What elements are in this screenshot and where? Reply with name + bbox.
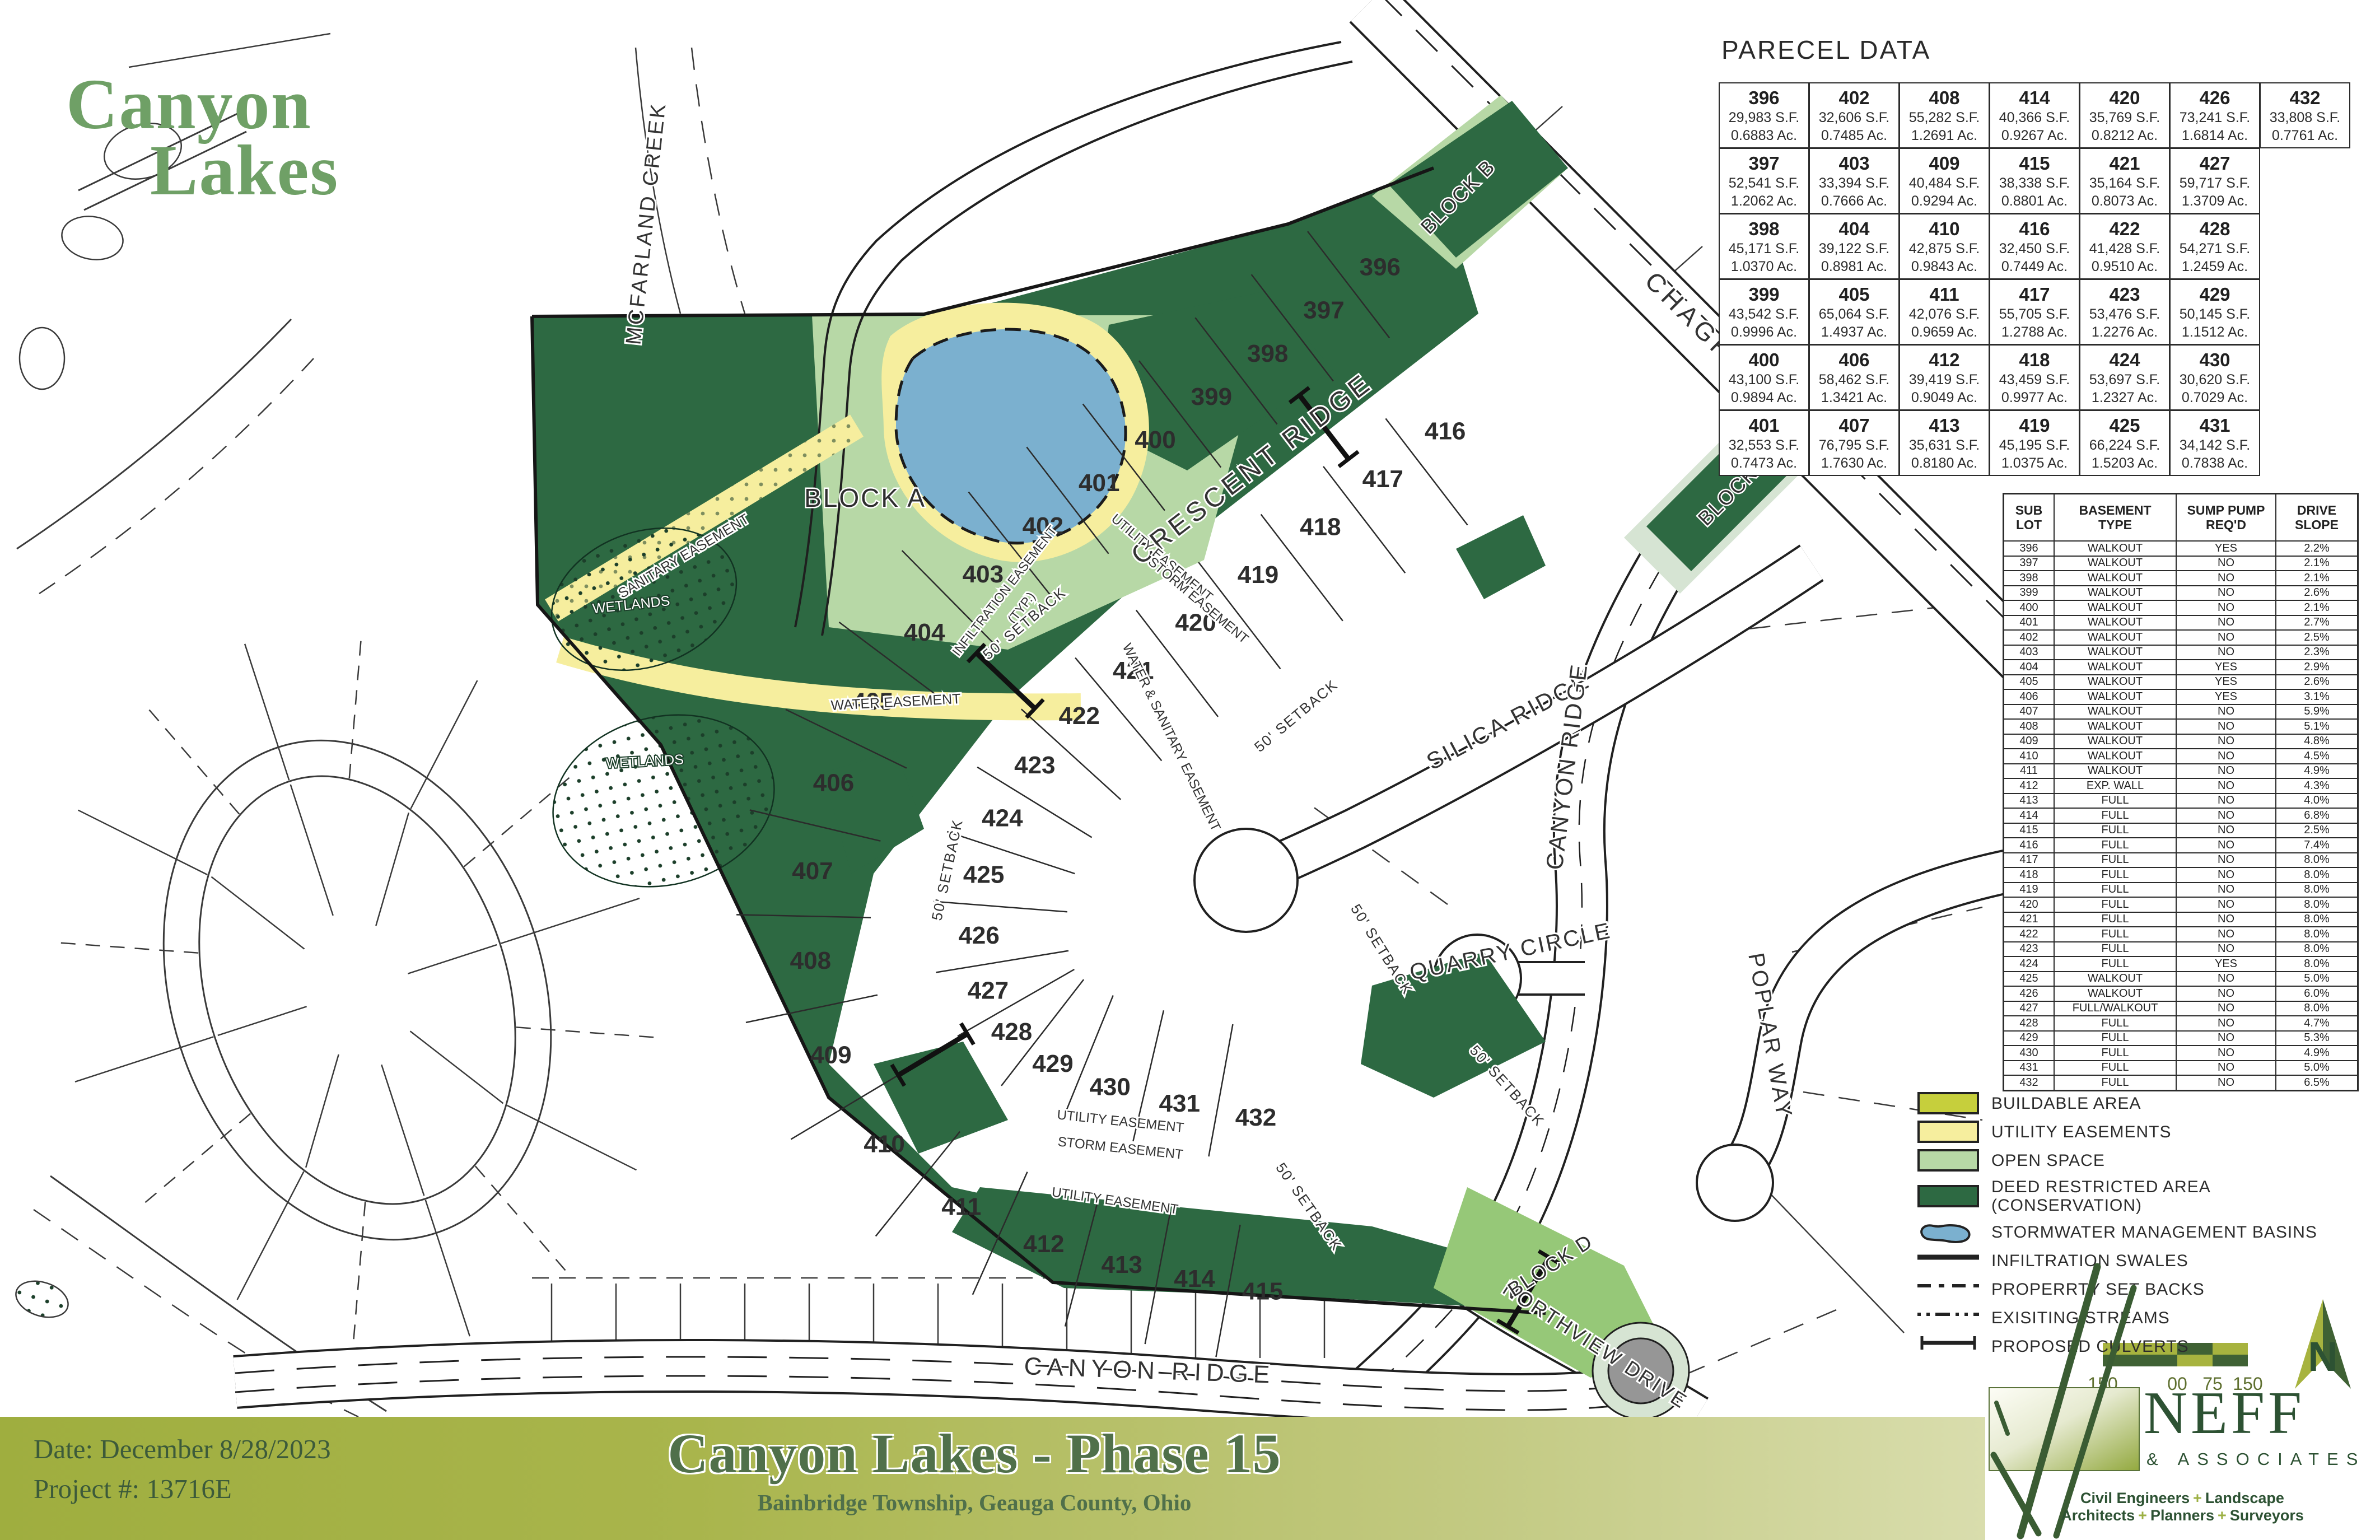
sublot-row: 417FULLNO8.0% (2004, 853, 2357, 869)
sublot-header: BASEMENTTYPE (2055, 494, 2177, 540)
sublot-row: 420FULLNO8.0% (2004, 898, 2357, 913)
sublot-row: 421FULLNO8.0% (2004, 913, 2357, 928)
lot-number: 417 (1362, 465, 1403, 493)
parcel-cell: 43030,620 S.F.0.7029 Ac. (2169, 344, 2260, 410)
sublot-row: 397WALKOUTNO2.1% (2004, 557, 2357, 572)
sublot-row: 401WALKOUTNO2.7% (2004, 616, 2357, 631)
sublot-row: 402WALKOUTNO2.5% (2004, 631, 2357, 646)
legend-label: BUILDABLE AREA (1991, 1094, 2141, 1113)
parcel-cell: 42353,476 S.F.1.2276 Ac. (2079, 279, 2170, 345)
lot-number: 430 (1089, 1073, 1130, 1100)
parcel-table-row: 39629,983 S.F.0.6883 Ac.40232,606 S.F.0.… (1719, 83, 2350, 148)
parcel-cell: 42135,164 S.F.0.8073 Ac. (2079, 148, 2170, 214)
legend-swatch (1917, 1121, 1979, 1143)
parcel-cell: 40043,100 S.F.0.9894 Ac. (1719, 344, 1809, 410)
lot-number: 412 (1023, 1230, 1064, 1258)
legend-swatch (1917, 1092, 1979, 1114)
basin-swatch-icon (1917, 1221, 1979, 1243)
parcel-cell: 42566,224 S.F.1.5203 Ac. (2079, 410, 2170, 476)
neff-tagline: Civil Engineers+Landscape Architects+Pla… (1989, 1490, 2376, 1524)
lot-number: 409 (810, 1041, 851, 1068)
lot-number: 396 (1360, 254, 1401, 281)
parcel-cell: 40855,282 S.F.1.2691 Ac. (1899, 82, 1990, 148)
lot-number: 415 (1242, 1278, 1283, 1305)
sublot-row: 400WALKOUTNO2.1% (2004, 601, 2357, 616)
sublot-row: 429FULLNO5.3% (2004, 1032, 2357, 1047)
parcel-cell: 41538,338 S.F.0.8801 Ac. (1989, 148, 2080, 214)
lot-number: 432 (1235, 1104, 1276, 1131)
lot-number: 422 (1059, 702, 1100, 730)
parcel-cell: 40439,122 S.F.0.8981 Ac. (1809, 213, 1900, 279)
lot-number: 400 (1135, 426, 1175, 454)
lot-number: 413 (1101, 1251, 1142, 1278)
parcel-cell: 42673,241 S.F.1.6814 Ac. (2169, 82, 2260, 148)
parcel-table-row: 40043,100 S.F.0.9894 Ac.40658,462 S.F.1.… (1719, 345, 2350, 410)
lot-number: 408 (790, 947, 831, 974)
legend-item: BUILDABLE AREA (1917, 1092, 2317, 1114)
canyon-lakes-logo: Canyon Lakes (66, 72, 339, 204)
lot-number: 397 (1303, 297, 1344, 324)
sublot-row: 425WALKOUTNO5.0% (2004, 972, 2357, 987)
parcel-cell: 39752,541 S.F.1.2062 Ac. (1719, 148, 1809, 214)
sublot-table-header: SUBLOTBASEMENTTYPESUMP PUMPREQ'DDRIVESLO… (2004, 494, 2357, 542)
lot-number: 428 (991, 1018, 1032, 1046)
parcel-cell: 42453,697 S.F.1.2327 Ac. (2079, 344, 2170, 410)
lot-number: 431 (1159, 1090, 1200, 1117)
project-number-text: Project #: 13716E (34, 1469, 331, 1509)
date-project-block: Date: December 8/28/2023 Project #: 1371… (34, 1429, 331, 1509)
legend-swatch (1917, 1185, 1979, 1207)
sublot-row: 403WALKOUTNO2.3% (2004, 646, 2357, 661)
parcel-cell: 41239,419 S.F.0.9049 Ac. (1899, 344, 1990, 410)
parcel-cell: 42854,271 S.F.1.2459 Ac. (2169, 213, 2260, 279)
sublot-row: 415FULLNO2.5% (2004, 824, 2357, 839)
legend-label: UTILITY EASEMENTS (1991, 1123, 2172, 1141)
lot-number: 398 (1247, 340, 1288, 367)
parcel-cell: 40132,553 S.F.0.7473 Ac. (1719, 410, 1809, 476)
legend-swatch (1917, 1149, 1979, 1172)
sublot-row: 407WALKOUTNO5.9% (2004, 705, 2357, 720)
sublot-row: 419FULLNO8.0% (2004, 883, 2357, 898)
sublot-row: 411WALKOUTNO4.9% (2004, 764, 2357, 780)
lot-number: 427 (968, 977, 1009, 1004)
lot-number: 426 (958, 922, 999, 949)
sublot-row: 423FULLNO8.0% (2004, 942, 2357, 958)
parcel-cell: 41142,076 S.F.0.9659 Ac. (1899, 279, 1990, 345)
parcel-cell: 40940,484 S.F.0.9294 Ac. (1899, 148, 1990, 214)
lot-number: 423 (1014, 752, 1055, 779)
parcel-cell: 42241,428 S.F.0.9510 Ac. (2079, 213, 2170, 279)
sublot-row: 424FULLYES8.0% (2004, 957, 2357, 972)
lot-number: 429 (1032, 1050, 1073, 1077)
lot-number: 404 (904, 619, 945, 646)
lot-number: 411 (941, 1193, 981, 1221)
lot-number: 407 (792, 857, 833, 885)
parcel-cell: 42035,769 S.F.0.8212 Ac. (2079, 82, 2170, 148)
lot-number: 410 (864, 1130, 904, 1158)
parcel-cell: 41335,631 S.F.0.8180 Ac. (1899, 410, 1990, 476)
parcel-cell: 39845,171 S.F.1.0370 Ac. (1719, 213, 1809, 279)
parcel-cell: 41843,459 S.F.0.9977 Ac. (1989, 344, 2080, 410)
lot-number: 401 (1079, 469, 1119, 497)
parcel-cell: 40776,795 S.F.1.7630 Ac. (1809, 410, 1900, 476)
parcel-cell: 39943,542 S.F.0.9996 Ac. (1719, 279, 1809, 345)
creek-label: MCFARLAND CREEK (622, 101, 670, 346)
setback-label: 50' SETBACK (1251, 676, 1341, 755)
legend-label: STORMWATER MANAGEMENT BASINS (1991, 1223, 2317, 1242)
parcel-table-row: 39845,171 S.F.1.0370 Ac.40439,122 S.F.0.… (1719, 214, 2350, 279)
sublot-row: 416FULLNO7.4% (2004, 838, 2357, 853)
parcel-table-row: 39943,542 S.F.0.9996 Ac.40565,064 S.F.1.… (1719, 279, 2350, 345)
sublot-row: 408WALKOUTNO5.1% (2004, 720, 2357, 735)
parcel-cell: 43233,808 S.F.0.7761 Ac. (2260, 82, 2350, 148)
lot-number: 406 (813, 769, 854, 796)
parcel-cell: 41632,450 S.F.0.7449 Ac. (1989, 213, 2080, 279)
sublot-header: SUBLOT (2004, 494, 2055, 540)
lot-number: 419 (1238, 561, 1278, 589)
lot-number: 424 (982, 804, 1023, 832)
legend-item: DEED RESTRICTED AREA(CONSERVATION) (1917, 1178, 2317, 1215)
sublot-row: 405WALKOUTYES2.6% (2004, 675, 2357, 690)
lot-number: 399 (1191, 383, 1232, 410)
easement-label-storm: STORM EASEMENT (1057, 1134, 1184, 1162)
legend-label: DEED RESTRICTED AREA(CONSERVATION) (1991, 1178, 2211, 1215)
sublot-row: 404WALKOUTYES2.9% (2004, 660, 2357, 675)
sublot-row: 398WALKOUTNO2.1% (2004, 571, 2357, 586)
lot-number: 414 (1174, 1265, 1215, 1292)
parcel-cell: 43134,142 S.F.0.7838 Ac. (2169, 410, 2260, 476)
sublot-row: 430FULLNO4.9% (2004, 1046, 2357, 1061)
parcel-data-table: 39629,983 S.F.0.6883 Ac.40232,606 S.F.0.… (1719, 83, 2350, 476)
sublot-row: 431FULLNO5.0% (2004, 1061, 2357, 1076)
sheet-title: Canyon Lakes - Phase 15 (668, 1421, 1281, 1486)
parcel-data-title: PARECEL DATA (1721, 35, 1931, 65)
parcel-table-row: 40132,553 S.F.0.7473 Ac.40776,795 S.F.1.… (1719, 410, 2350, 476)
sublot-row: 422FULLNO8.0% (2004, 927, 2357, 942)
sublot-row: 432FULLNO6.5% (2004, 1076, 2357, 1090)
parcel-cell: 42950,145 S.F.1.1512 Ac. (2169, 279, 2260, 345)
line-solid-swatch-icon (1917, 1249, 1979, 1272)
sublot-row: 414FULLNO6.8% (2004, 809, 2357, 824)
parcel-cell: 41945,195 S.F.1.0375 Ac. (1989, 410, 2080, 476)
parcel-cell: 41440,366 S.F.0.9267 Ac. (1989, 82, 2080, 148)
sublot-row: 418FULLNO8.0% (2004, 868, 2357, 883)
neff-associates: & ASSOCIATES (2146, 1449, 2365, 1469)
parcel-cell: 41042,875 S.F.0.9843 Ac. (1899, 213, 1990, 279)
sublot-row: 406WALKOUTYES3.1% (2004, 690, 2357, 705)
sublot-row: 412EXP. WALLNO4.3% (2004, 779, 2357, 794)
parcel-cell: 40333,394 S.F.0.7666 Ac. (1809, 148, 1900, 214)
legend-label: OPEN SPACE (1991, 1151, 2105, 1170)
parcel-cell: 40658,462 S.F.1.3421 Ac. (1809, 344, 1900, 410)
logo-line2: Lakes (150, 138, 339, 204)
sheet-subtitle: Bainbridge Township, Geauga County, Ohio (668, 1489, 1281, 1516)
setback-label: 50' SETBACK (928, 818, 966, 922)
parcel-cell: 41755,705 S.F.1.2788 Ac. (1989, 279, 2080, 345)
neff-logo-square (1989, 1388, 2139, 1471)
parcel-cell: 39629,983 S.F.0.6883 Ac. (1719, 82, 1809, 148)
parcel-cell: 42759,717 S.F.1.3709 Ac. (2169, 148, 2260, 214)
legend-item: OPEN SPACE (1917, 1149, 2317, 1172)
legend-item: STORMWATER MANAGEMENT BASINS (1917, 1221, 2317, 1243)
lot-number: 403 (963, 561, 1004, 588)
neff-name: NEFF (2144, 1379, 2305, 1448)
line-dashdot-swatch-icon (1917, 1306, 1979, 1329)
logo-line1: Canyon (66, 72, 339, 138)
sublot-row: 426WALKOUTNO6.0% (2004, 987, 2357, 1002)
sublot-table: SUBLOTBASEMENTTYPESUMP PUMPREQ'DDRIVESLO… (2003, 493, 2359, 1091)
block-a-label: BLOCK A (804, 483, 926, 512)
legend-item: UTILITY EASEMENTS (1917, 1121, 2317, 1143)
lot-number: 418 (1300, 513, 1341, 540)
lot-number: 416 (1425, 417, 1466, 445)
sublot-header: DRIVESLOPE (2276, 494, 2357, 540)
easement-label-water-sanitary: WATER & SANITARY EASEMENT (1119, 641, 1224, 834)
sublot-row: 409WALKOUTNO4.8% (2004, 735, 2357, 750)
line-culvert-swatch-icon (1917, 1335, 1979, 1357)
date-text: Date: December 8/28/2023 (34, 1429, 331, 1469)
parcel-table-row: 39752,541 S.F.1.2062 Ac.40333,394 S.F.0.… (1719, 148, 2350, 214)
plat-sheet: 3963973983994004014024034044054064074084… (0, 0, 2380, 1540)
lot-number: 425 (963, 861, 1004, 889)
parcel-cell: 40565,064 S.F.1.4937 Ac. (1809, 279, 1900, 345)
sheet-title-block: Canyon Lakes - Phase 15 Bainbridge Towns… (668, 1421, 1281, 1516)
sublot-row: 427FULL/WALKOUTNO8.0% (2004, 1002, 2357, 1017)
parcel-cell: 40232,606 S.F.0.7485 Ac. (1809, 82, 1900, 148)
sublot-row: 428FULLNO4.7% (2004, 1016, 2357, 1032)
sublot-header: SUMP PUMPREQ'D (2177, 494, 2276, 540)
sublot-row: 410WALKOUTNO4.5% (2004, 749, 2357, 764)
line-dashed-swatch-icon (1917, 1278, 1979, 1300)
sublot-row: 396WALKOUTYES2.2% (2004, 542, 2357, 557)
sublot-row: 399WALKOUTNO2.6% (2004, 586, 2357, 601)
sublot-row: 413FULLNO4.0% (2004, 794, 2357, 809)
